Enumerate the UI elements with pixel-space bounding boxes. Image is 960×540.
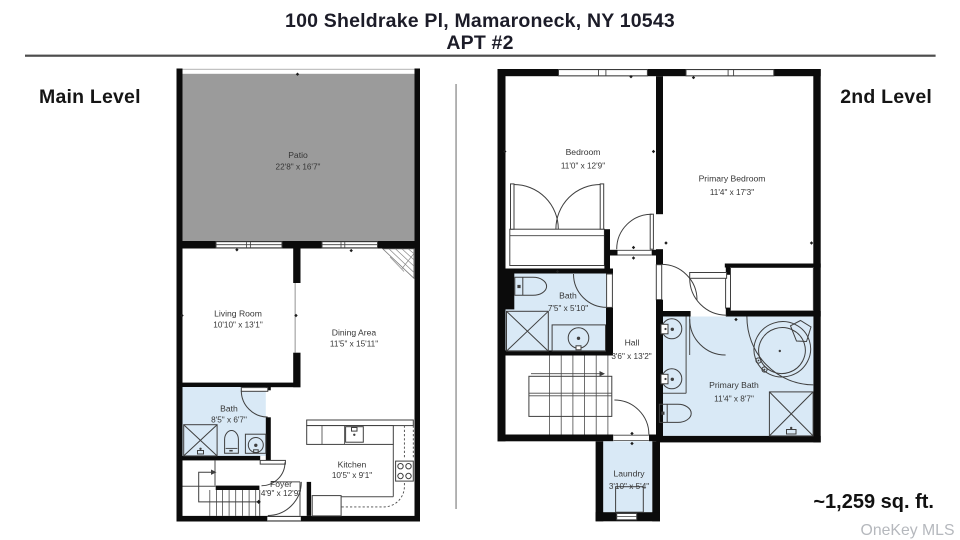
svg-text:Bedroom: Bedroom <box>566 147 601 157</box>
svg-text:7'5" x 5'10": 7'5" x 5'10" <box>548 304 588 313</box>
svg-text:11'4" x 8'7": 11'4" x 8'7" <box>714 395 754 404</box>
svg-text:Kitchen: Kitchen <box>338 459 367 469</box>
svg-text:OneKey MLS: OneKey MLS <box>861 522 955 539</box>
svg-text:~1,259 sq. ft.: ~1,259 sq. ft. <box>813 491 934 513</box>
svg-text:Patio: Patio <box>288 150 308 160</box>
svg-text:3'10" x 5'4": 3'10" x 5'4" <box>609 482 649 491</box>
svg-text:10'5" x 9'1": 10'5" x 9'1" <box>332 471 372 480</box>
svg-text:3'6" x 13'2": 3'6" x 13'2" <box>611 352 651 361</box>
svg-text:22'8" x 16'7": 22'8" x 16'7" <box>276 163 321 172</box>
svg-text:Main Level: Main Level <box>39 86 141 108</box>
svg-text:11'5" x 15'11": 11'5" x 15'11" <box>330 340 378 349</box>
svg-text:Dining Area: Dining Area <box>332 328 377 338</box>
svg-text:10'10" x 13'1": 10'10" x 13'1" <box>213 321 263 330</box>
svg-text:8'5" x 6'7": 8'5" x 6'7" <box>211 416 247 425</box>
svg-text:Laundry: Laundry <box>613 469 645 479</box>
svg-text:Bath: Bath <box>559 291 577 301</box>
svg-text:Hall: Hall <box>625 338 640 348</box>
svg-text:11'0" x 12'9": 11'0" x 12'9" <box>561 162 605 171</box>
svg-text:Primary Bath: Primary Bath <box>709 380 759 390</box>
svg-text:Foyer: Foyer <box>270 479 292 489</box>
svg-text:11'4" x 17'3": 11'4" x 17'3" <box>710 188 754 197</box>
svg-text:2nd Level: 2nd Level <box>840 86 932 108</box>
svg-text:Living Room: Living Room <box>214 309 262 319</box>
svg-text:Bath: Bath <box>220 404 238 414</box>
svg-text:4'9" x 12'9": 4'9" x 12'9" <box>261 489 301 498</box>
svg-text:APT #2: APT #2 <box>446 32 513 54</box>
svg-text:Primary Bedroom: Primary Bedroom <box>699 174 766 184</box>
svg-text:100 Sheldrake Pl, Mamaroneck,: 100 Sheldrake Pl, Mamaroneck, NY 10543 <box>285 10 675 32</box>
